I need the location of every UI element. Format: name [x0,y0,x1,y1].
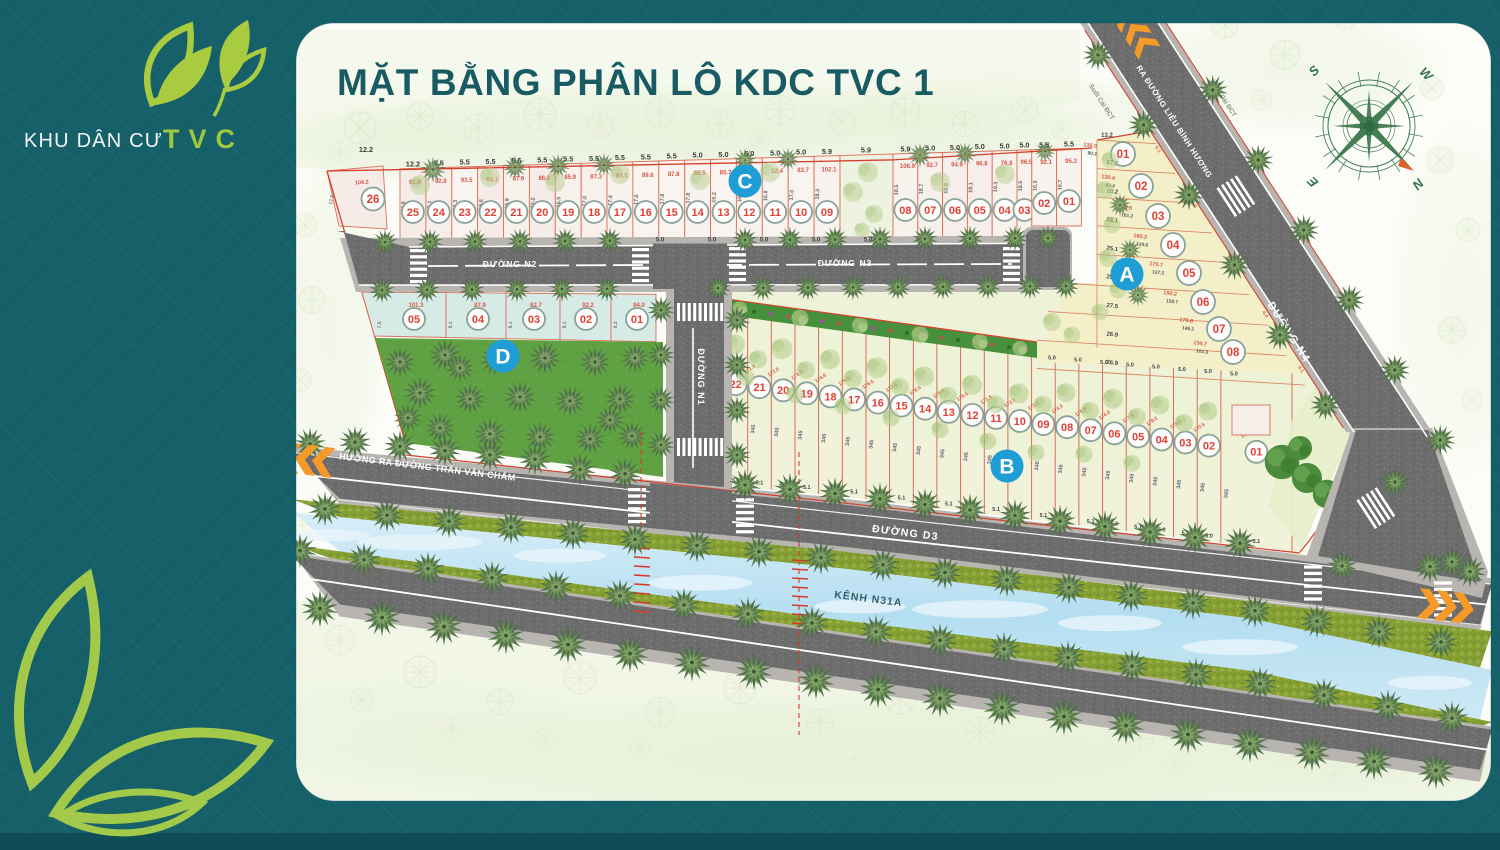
svg-text:05: 05 [1132,431,1144,443]
svg-text:20: 20 [536,207,548,219]
svg-text:C: C [737,171,752,194]
svg-text:96.8: 96.8 [976,162,988,168]
svg-text:12: 12 [966,410,978,422]
svg-text:16.2: 16.2 [711,192,718,203]
svg-text:07: 07 [1213,324,1226,336]
svg-text:02: 02 [1203,441,1215,453]
svg-text:17.8: 17.8 [685,193,692,204]
svg-text:16.8: 16.8 [763,190,770,201]
svg-text:ĐƯỜNG N3: ĐƯỜNG N3 [818,257,872,268]
svg-text:5.0: 5.0 [950,143,960,152]
svg-text:18.3: 18.3 [815,189,822,200]
svg-text:92.2: 92.2 [582,303,594,309]
svg-text:16.5: 16.5 [1033,180,1040,191]
svg-text:5.9: 5.9 [861,145,871,154]
svg-text:5.0: 5.0 [1048,356,1056,362]
svg-text:03: 03 [1179,438,1191,450]
svg-text:13: 13 [717,207,729,219]
svg-text:5.5: 5.5 [615,153,625,162]
svg-text:14: 14 [691,207,704,219]
svg-text:14: 14 [919,404,932,416]
svg-text:A: A [1119,264,1134,287]
svg-text:5.0: 5.0 [760,238,769,244]
svg-text:87.9: 87.9 [474,303,486,309]
svg-text:01: 01 [1117,149,1130,161]
svg-text:85.9: 85.9 [564,175,576,181]
svg-text:102.1: 102.1 [821,167,837,173]
svg-text:02: 02 [580,314,592,326]
svg-text:06: 06 [1108,428,1120,440]
svg-text:25: 25 [407,207,419,219]
svg-text:5.0: 5.0 [1126,362,1134,368]
svg-text:21: 21 [753,382,765,394]
svg-text:04: 04 [1156,434,1169,446]
svg-text:06: 06 [1197,297,1210,309]
svg-text:94.0: 94.0 [633,303,645,309]
svg-text:94.9: 94.9 [951,163,963,169]
svg-text:5.1: 5.1 [992,507,1000,513]
svg-text:87.3: 87.3 [590,174,602,180]
svg-text:5.5: 5.5 [563,155,573,164]
svg-text:5.0: 5.0 [656,238,665,244]
svg-text:18.7: 18.7 [919,184,926,195]
svg-text:12: 12 [743,207,755,219]
svg-text:345: 345 [892,443,899,453]
svg-text:345: 345 [821,433,828,443]
svg-text:345: 345 [1223,489,1230,499]
svg-text:92.7: 92.7 [926,163,938,169]
svg-text:03: 03 [1152,211,1165,223]
svg-text:ĐƯỜNG N2: ĐƯỜNG N2 [483,258,537,269]
svg-text:07: 07 [1085,425,1097,437]
svg-text:101.3: 101.3 [408,303,424,309]
svg-text:5.5: 5.5 [641,152,651,161]
svg-text:345: 345 [797,430,804,440]
svg-text:8.3: 8.3 [613,321,619,328]
svg-text:8.1: 8.1 [562,321,568,328]
svg-text:5.5: 5.5 [589,154,599,163]
svg-text:345: 345 [1081,467,1088,477]
svg-text:5.1: 5.1 [756,480,764,486]
svg-text:ĐƯỜNG N1: ĐƯỜNG N1 [696,348,707,405]
svg-text:5.0: 5.0 [1152,365,1160,371]
svg-text:83.7: 83.7 [797,168,809,174]
svg-text:345: 345 [750,424,757,434]
svg-text:82.7: 82.7 [530,303,542,309]
svg-text:03: 03 [1018,205,1030,217]
svg-text:12.2: 12.2 [406,159,420,168]
svg-text:5.0: 5.0 [1204,369,1212,375]
svg-text:106.9: 106.9 [900,164,916,170]
svg-text:05: 05 [408,314,420,326]
svg-text:17.0: 17.0 [789,190,796,201]
svg-text:345: 345 [1152,476,1159,486]
svg-text:03: 03 [528,314,540,326]
svg-text:08: 08 [1061,422,1073,434]
svg-text:02: 02 [1038,198,1050,210]
svg-text:5.0: 5.0 [1074,358,1082,364]
svg-text:92.9: 92.9 [435,179,447,185]
svg-text:02: 02 [1135,181,1148,193]
svg-text:5.1: 5.1 [898,496,906,502]
svg-text:04: 04 [1167,240,1180,252]
svg-text:89.6: 89.6 [642,173,654,179]
svg-text:01: 01 [631,314,643,326]
svg-text:345: 345 [939,449,946,459]
svg-text:345: 345 [1058,464,1065,474]
svg-text:5.0: 5.0 [975,142,985,151]
svg-text:5.1: 5.1 [850,490,858,496]
svg-text:5.0: 5.0 [1230,371,1238,377]
svg-text:96.5: 96.5 [1021,160,1033,166]
svg-text:11: 11 [769,207,781,219]
svg-text:5.1: 5.1 [945,501,953,507]
svg-text:345: 345 [845,436,852,446]
svg-text:5.5: 5.5 [667,152,677,161]
svg-text:09: 09 [1037,419,1049,431]
svg-text:93.5: 93.5 [461,178,473,184]
svg-text:16: 16 [872,398,884,410]
svg-text:05: 05 [1183,268,1196,280]
svg-text:92.1: 92.1 [1040,160,1052,166]
svg-text:87.8: 87.8 [668,172,680,178]
svg-text:19.3: 19.3 [993,181,1000,192]
svg-text:5.0: 5.0 [1019,141,1029,150]
svg-text:MẶT BẰNG PHÂN LÔ KDC TVC 1: MẶT BẰNG PHÂN LÔ KDC TVC 1 [337,61,934,103]
svg-text:08: 08 [899,205,911,217]
svg-text:5.0: 5.0 [770,148,780,157]
svg-text:18.5: 18.5 [894,184,901,195]
svg-text:05: 05 [974,205,986,217]
svg-text:7.5: 7.5 [377,321,383,328]
svg-text:5.5: 5.5 [460,158,470,167]
svg-text:5.0: 5.0 [1000,142,1010,151]
svg-text:5.5: 5.5 [537,155,547,164]
svg-text:5.0: 5.0 [1100,360,1108,366]
svg-text:15: 15 [666,207,678,219]
svg-text:90.2: 90.2 [1087,150,1097,157]
svg-text:13: 13 [943,407,955,419]
svg-text:09: 09 [821,207,833,219]
svg-text:24: 24 [433,207,446,219]
svg-text:345: 345 [774,427,781,437]
svg-text:5.0: 5.0 [1178,367,1186,373]
svg-text:87.9: 87.9 [513,177,525,183]
svg-text:5.0: 5.0 [718,150,728,159]
svg-text:18: 18 [588,207,600,219]
svg-text:345: 345 [1176,479,1183,489]
svg-text:08: 08 [1227,347,1240,359]
svg-text:345: 345 [1034,461,1041,471]
svg-text:345: 345 [916,446,923,456]
svg-text:01: 01 [1250,447,1262,459]
svg-text:06: 06 [949,205,961,217]
svg-text:345: 345 [868,440,875,450]
svg-text:19.5: 19.5 [1018,181,1025,192]
svg-text:16.7: 16.7 [1057,179,1064,190]
svg-text:5.0: 5.0 [708,238,717,244]
svg-text:345: 345 [1105,470,1112,480]
svg-text:8.1: 8.1 [448,321,454,328]
svg-text:8.1: 8.1 [508,321,514,328]
svg-text:5.5: 5.5 [485,157,495,166]
svg-text:04: 04 [998,205,1011,217]
svg-text:23: 23 [459,207,471,219]
svg-text:12.2: 12.2 [359,145,373,154]
svg-text:5.0: 5.0 [925,144,935,153]
svg-text:04: 04 [472,314,485,326]
svg-text:19.1: 19.1 [968,182,975,193]
svg-text:15: 15 [895,401,907,413]
svg-text:5.0: 5.0 [693,151,703,160]
svg-text:11: 11 [990,413,1002,425]
svg-text:07: 07 [924,205,936,217]
svg-text:345: 345 [1200,483,1207,493]
svg-text:01: 01 [1063,196,1075,208]
svg-text:26: 26 [367,194,380,206]
svg-text:17: 17 [614,207,626,219]
svg-text:345: 345 [1129,473,1136,483]
svg-text:5.9: 5.9 [900,145,910,154]
svg-text:21: 21 [510,207,522,219]
svg-text:22: 22 [484,207,496,219]
svg-text:D: D [495,346,510,369]
svg-text:95.3: 95.3 [1065,159,1077,165]
svg-text:16: 16 [640,207,652,219]
svg-text:10: 10 [795,207,807,219]
svg-text:10: 10 [1014,416,1026,428]
svg-text:19: 19 [562,207,574,219]
svg-text:345: 345 [963,452,970,462]
svg-text:5.0: 5.0 [812,238,821,244]
svg-text:106.2: 106.2 [355,180,369,187]
svg-text:5.9: 5.9 [822,147,832,156]
svg-text:5.0: 5.0 [796,148,806,157]
svg-text:B: B [999,456,1014,479]
svg-text:5.5: 5.5 [1064,140,1074,149]
svg-text:18: 18 [824,391,836,403]
